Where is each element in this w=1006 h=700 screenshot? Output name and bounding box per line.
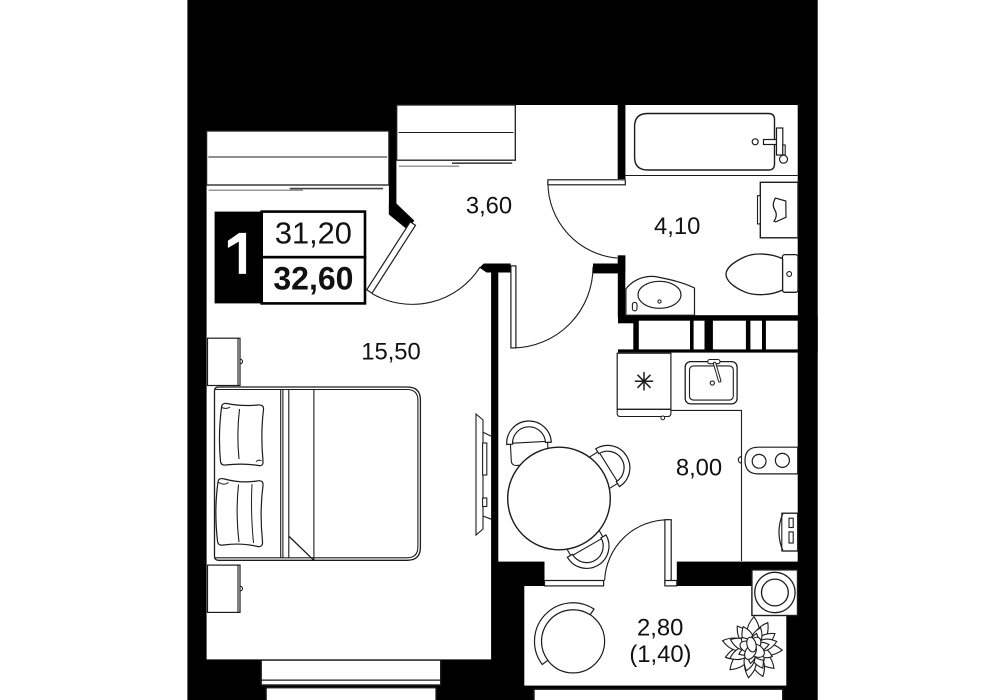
svg-text:31,20: 31,20 [275, 216, 352, 251]
svg-text:32,60: 32,60 [273, 261, 353, 297]
svg-text:2,80: 2,80 [637, 615, 683, 642]
svg-text:4,10: 4,10 [654, 213, 700, 240]
svg-text:3,60: 3,60 [466, 193, 512, 220]
svg-text:8,00: 8,00 [676, 454, 722, 481]
svg-text:(1,40): (1,40) [629, 641, 691, 668]
svg-text:15,50: 15,50 [361, 339, 421, 366]
